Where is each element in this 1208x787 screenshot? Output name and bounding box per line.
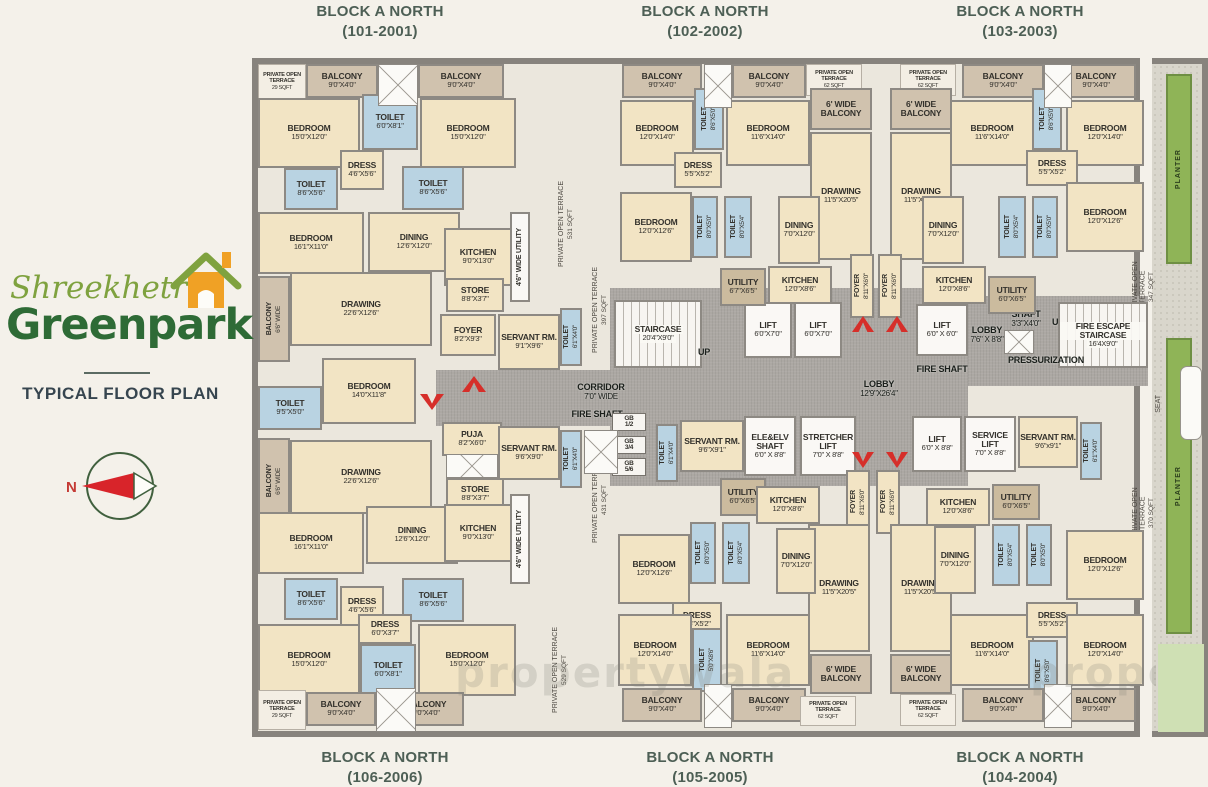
room-label: 6' WIDE BALCONY [892, 665, 950, 683]
room-label: TOILET [1004, 215, 1012, 239]
block-header-106-2006: BLOCK A NORTH(106-2006) [280, 748, 490, 787]
seat-label: SEAT [1152, 372, 1166, 436]
room-dimensions: 8'6"X5'6" [419, 188, 446, 197]
block-header-name: BLOCK A NORTH [915, 2, 1125, 22]
room-lift: LIFT6'0"X7'0" [794, 302, 842, 358]
room-dimensions: 9'0"X4'0" [755, 705, 782, 714]
room-label: LOBBY [972, 326, 1003, 336]
room-label: FOYER [854, 274, 862, 297]
grass [1158, 644, 1204, 732]
room-dimensions: 16'1"X11'0" [294, 243, 328, 252]
room-dimensions: 12'0"X12'6" [1088, 565, 1123, 574]
room-bedroom: BEDROOM15'0"X12'0" [258, 624, 360, 696]
room-dress: DRESS5'5"X5'2" [1026, 150, 1078, 186]
duct-shaft-icon [704, 64, 732, 108]
room-balcony: BALCONY9'0"X4'0" [732, 64, 806, 98]
room-dimensions: 8'6"X5'0" [710, 107, 717, 130]
room-dimensions: 12'0"X8'6" [942, 507, 973, 516]
room-dimensions: 431 SQFT [601, 485, 608, 515]
block-header-104-2004: BLOCK A NORTH(104-2004) [915, 748, 1125, 787]
room-dimensions: 8'2"X6'0" [458, 439, 485, 448]
room-dimensions: 7'0" X 8'8" [813, 451, 844, 460]
room-dimensions: 6'0"X8'1" [374, 670, 401, 679]
room-label: PRESSURIZATION [1008, 356, 1084, 366]
room-dimensions: 11'5"X20'5" [822, 588, 856, 597]
room-dimensions: 6'7"X6'5" [729, 287, 756, 296]
room-toilet: TOILET8'0"X5'0" [690, 522, 716, 584]
room-label: TOILET [1037, 215, 1045, 239]
room-dimensions: 6'0" X 8'8" [922, 444, 953, 453]
room-label: ELE&ELV SHAFT [746, 433, 794, 451]
room-label: BALCONY [266, 464, 274, 497]
utility-corridor-106: 4'6" WIDE UTILITY [510, 494, 530, 584]
room-lift: LIFT6'0" X 8'8" [912, 416, 962, 472]
room-dimensions: 6'1"X4'0" [572, 447, 579, 470]
room-dimensions: 9'0"X13'0" [462, 257, 493, 266]
room-foyer: FOYER8'11"X6'0" [850, 254, 874, 318]
room-private-open-terrace: PRIVATE OPEN TERRACE29 SQFT [258, 690, 306, 730]
room-dimensions: 8'0"X5'0" [704, 541, 711, 564]
room-dimensions: 7'0"X12'0" [783, 230, 814, 239]
room-bedroom: BEDROOM11'6"X14'0" [950, 100, 1034, 166]
room-label: PRIVATE OPEN TERRACE [558, 181, 566, 267]
room-dimensions: 12'0"X14'0" [640, 133, 675, 142]
room-dimensions: 9'0"X4'0" [989, 81, 1016, 90]
room-utility: UTILITY6'0"X6'5" [988, 276, 1036, 314]
room-dimensions: 9'6"x9'1" [1035, 442, 1061, 451]
room-dimensions: 12'0"X12'6" [1088, 217, 1123, 226]
room-6-wide-balcony: 6' WIDE BALCONY [890, 654, 952, 694]
room-store: STORE8'8"X3'7" [446, 278, 504, 312]
room-label: TOILET [701, 107, 709, 131]
room-label: TOILET [730, 215, 738, 239]
room-dimensions: 8'2"X9'3" [454, 335, 481, 344]
room-drawing: DRAWING11'5"X20'5" [808, 524, 870, 652]
room-servant-rm: SERVANT RM.9'1"X9'6" [498, 314, 560, 370]
room-bedroom: BEDROOM12'0"X12'6" [618, 534, 690, 604]
room-label: TOILET [728, 541, 736, 565]
block-header-103-2003: BLOCK A NORTH(103-2003) [915, 2, 1125, 41]
room-label: PRIVATE OPEN TERRACE [807, 71, 861, 83]
room-dimensions: 6'0" X 6'0" [927, 330, 958, 339]
room-dimensions: 6'0"X7'0" [804, 330, 831, 339]
room-dimensions: 8'11"X6'0" [863, 273, 870, 299]
room-dimensions: 397 SQFT [601, 295, 608, 325]
room-dining: DINING7'0"X12'0" [922, 196, 964, 264]
room-dimensions: 6'0"X8'1" [376, 122, 403, 131]
logo-divider [84, 372, 150, 374]
room-dimensions: 62 SQFT [818, 714, 838, 720]
room-kitchen: KITCHEN12'0"X8'6" [926, 488, 990, 526]
room-dimensions: 8'6"X5'0" [1048, 107, 1055, 130]
duct-shaft-icon [584, 430, 618, 474]
room-dimensions: 12'0"X12'6" [637, 569, 672, 578]
room-label: TOILET [998, 543, 1006, 567]
room-label: 6' WIDE BALCONY [812, 665, 870, 683]
room-balcony: BALCONY9'0"X4'0" [622, 64, 702, 98]
room-label: FIRE SHAFT [917, 365, 968, 375]
room-label: FIRE ESCAPE STAIRCASE [1060, 322, 1146, 340]
floor-plan-page: BLOCK A NORTH(101-2001)BLOCK A NORTH(102… [0, 0, 1208, 787]
room-toilet: TOILET8'0"X5'4" [992, 524, 1020, 586]
room-toilet: TOILET6'1"X4'0" [656, 424, 678, 482]
room-dress: DRESS4'6"X5'6" [340, 150, 384, 190]
room-dimensions: 9'0"X4'0" [1082, 81, 1109, 90]
room-dimensions: 4'6"X5'6" [348, 170, 375, 179]
room-dimensions: 8'0"X5'0" [706, 215, 713, 238]
room-label: 6' WIDE BALCONY [892, 100, 950, 118]
room-toilet: TOILET8'0"X5'0" [692, 196, 718, 258]
room-label: STRETCHER LIFT [802, 433, 854, 451]
room-toilet: TOILET8'6"X5'6" [284, 168, 338, 210]
room-dimensions: 11'5"X20'5" [824, 196, 858, 205]
room-label: BALCONY [266, 302, 274, 335]
block-header-range: (101-2001) [275, 22, 485, 42]
room-label: PRIVATE OPEN TERRACE [592, 267, 600, 353]
room-dimensions: 11'6"X14'0" [975, 650, 1009, 659]
room-dimensions: 8'6"X5'6" [419, 600, 446, 609]
room-utility: UTILITY6'7"X6'5" [720, 268, 766, 306]
gb-12: GB1/2 [612, 413, 646, 431]
room-dimensions: 9'0"X4'0" [447, 81, 474, 90]
room-servant-rm: SERVANT RM.9'6"x9'1" [1018, 416, 1078, 468]
room-dimensions: 9'0"X4'0" [327, 709, 354, 718]
room-label: 6' WIDE BALCONY [812, 100, 870, 118]
room-label: TOILET [695, 541, 703, 565]
room-label: LOBBY [864, 380, 895, 390]
room-dimensions: 9'5"X5'0" [276, 408, 303, 417]
room-dimensions: 9'0"X4'0" [989, 705, 1016, 714]
room-puja: PUJA8'2"X6'0" [442, 422, 502, 456]
room-label: SERVICE LIFT [966, 431, 1014, 449]
duct-shaft-icon [1004, 330, 1034, 354]
room-dimensions: 5'5"X5'2" [1038, 168, 1065, 177]
room-servant-rm: SERVANT RM.9'6"X9'0" [498, 426, 560, 480]
house-icon [168, 246, 244, 317]
seat [1180, 366, 1202, 440]
room-dimensions: 12'6"X12'0" [397, 242, 432, 251]
room-dimensions: 9'0"X4'0" [648, 81, 675, 90]
block-header-name: BLOCK A NORTH [605, 748, 815, 768]
block-header-range: (105-2005) [605, 768, 815, 787]
room-dimensions: 8'11"X6'0" [859, 489, 866, 515]
room-foyer: FOYER8'2"X9'3" [440, 314, 496, 356]
room-balcony: BALCONY9'0"X4'0" [418, 64, 504, 98]
room-dimensions: 8'0"X5'4" [739, 215, 746, 238]
room-dress: DRESS6'0"X3'7" [358, 614, 412, 644]
room-label: PRIVATE OPEN TERRACE [901, 71, 955, 83]
lobby-main: LOBBY12'9"X26'4" [836, 374, 922, 404]
room-bedroom: BEDROOM16'1"X11'0" [258, 212, 364, 274]
room-dimensions: 8'6"X5'6" [297, 189, 324, 198]
room-dimensions: 6'1"X4'0" [668, 441, 675, 464]
room-dimensions: 6'1"X4'0" [1092, 439, 1099, 462]
room-private-open-terrace: PRIVATE OPEN TERRACE29 SQFT [258, 64, 306, 100]
room-dimensions: 8'0"X5'4" [1007, 543, 1014, 566]
room-dimensions: 11'6"X14'0" [975, 133, 1009, 142]
room-dimensions: 7'0" X 8'8" [975, 449, 1006, 458]
room-dimensions: 9'6"X9'1" [698, 446, 725, 455]
room-utility: UTILITY6'0"X6'5" [992, 484, 1040, 520]
room-dimensions: 6'1"X4'0" [572, 325, 579, 348]
room-label: TOILET [697, 215, 705, 239]
room-label: UP [698, 348, 710, 358]
room-label: TOILET [563, 325, 571, 349]
room-dimensions: 15'0"X12'0" [292, 133, 327, 142]
room-toilet: TOILET6'1"X4'0" [1080, 422, 1102, 480]
room-dimensions: 6'0"X6'5" [1002, 502, 1029, 511]
room-service-lift: SERVICE LIFT7'0" X 8'8" [964, 416, 1016, 472]
room-toilet: TOILET9'5"X5'0" [258, 386, 322, 430]
room-label: FOYER [882, 274, 890, 297]
fire-shaft-right: FIRE SHAFT [914, 358, 970, 382]
room-dimensions: 3'3"X4'0" [1011, 319, 1040, 328]
room-label: PRIVATE OPEN TERRACE [901, 701, 955, 713]
room-balcony: BALCONY6'6" WIDE [258, 276, 290, 362]
room-dimensions: 6'0"X7'0" [754, 330, 781, 339]
block-header-102-2002: BLOCK A NORTH(102-2002) [600, 2, 810, 41]
room-label: PRIVATE OPEN TERRACE [259, 73, 305, 85]
room-dimensions: 7'0"X12'0" [780, 561, 811, 570]
room-kitchen: KITCHEN9'0"X13'0" [444, 504, 512, 562]
room-toilet: TOILET8'6"X5'6" [284, 578, 338, 620]
room-dimensions: 12'9"X26'4" [860, 389, 897, 398]
room-dining: DINING7'0"X12'0" [934, 526, 976, 594]
duct-shaft-icon [376, 688, 416, 732]
room-label: TOILET [1031, 543, 1039, 567]
room-dimensions: 8'6"X5'6" [297, 599, 324, 608]
room-bedroom: BEDROOM11'6"X14'0" [950, 614, 1034, 686]
room-dimensions: 7'0"X12'0" [927, 230, 958, 239]
room-6-wide-balcony: 6' WIDE BALCONY [890, 88, 952, 130]
watermark-text: propertywala [455, 648, 800, 697]
room-pressurization: PRESSURIZATION [984, 352, 1108, 370]
duct-shaft-icon [1044, 64, 1072, 108]
block-header-range: (106-2006) [280, 768, 490, 787]
room-dimensions: 370 SQFT [1148, 498, 1155, 528]
room-label: PLANTER [1175, 149, 1183, 189]
room-lift: LIFT6'0"X7'0" [744, 302, 792, 358]
compass-north-label: N [66, 479, 77, 496]
room-label: 4'6" WIDE UTILITY [516, 510, 524, 568]
room-dimensions: 531 SQFT [567, 209, 574, 239]
room-label: TOILET [1039, 107, 1047, 131]
room-balcony: BALCONY9'0"X4'0" [306, 64, 378, 98]
room-bedroom: BEDROOM12'0"X12'6" [620, 192, 692, 262]
room-dining: DINING7'0"X12'0" [778, 196, 820, 264]
room-kitchen: KITCHEN12'0"X8'6" [768, 266, 832, 304]
room-toilet: TOILET8'0"X5'4" [998, 196, 1026, 258]
room-dimensions: 12'0"X8'6" [784, 285, 815, 294]
duct-shaft-icon [378, 64, 418, 106]
room-drawing: DRAWING22'6"X12'6" [290, 440, 432, 514]
room-label: PLANTER [1175, 466, 1183, 506]
room-drawing: DRAWING22'6"X12'6" [290, 272, 432, 346]
utility-corridor-101: 4'6" WIDE UTILITY [510, 212, 530, 302]
room-dimensions: 9'0"X13'0" [462, 533, 493, 542]
block-header-range: (102-2002) [600, 22, 810, 42]
room-servant-rm: SERVANT RM.9'6"X9'1" [680, 420, 744, 472]
room-dimensions: 1/2 [625, 422, 633, 429]
room-dimensions: 8'11"X6'0" [891, 273, 898, 299]
planter-top: PLANTER [1166, 74, 1192, 264]
room-dimensions: 9'1"X9'6" [515, 342, 542, 351]
room-dimensions: 62 SQFT [918, 713, 938, 719]
room-private-open-terrace: PRIVATE OPEN TERRACE62 SQFT [800, 696, 856, 726]
room-dimensions: 12'6"X12'0" [395, 535, 430, 544]
room-dimensions: 6'0" X 8'8" [755, 451, 786, 460]
room-stretcher-lift: STRETCHER LIFT7'0" X 8'8" [800, 416, 856, 476]
room-dimensions: 22'6"X12'6" [344, 309, 379, 318]
room-private-open-terrace: PRIVATE OPEN TERRACE397 SQFT [592, 260, 608, 360]
room-dimensions: 15'0"X12'0" [451, 133, 486, 142]
room-dimensions: 8'11"X6'0" [889, 489, 896, 515]
room-label: SEAT [1155, 395, 1163, 413]
room-dimensions: 12'0"X12'6" [639, 227, 674, 236]
room-kitchen: KITCHEN12'0"X8'6" [756, 486, 820, 524]
room-dimensions: 7'0" WIDE [584, 392, 618, 401]
room-toilet: TOILET8'0"X5'4" [722, 522, 750, 584]
room-label: FOYER [880, 490, 888, 513]
room-label: PRIVATE OPEN TERRACE [259, 701, 305, 713]
room-dimensions: 16'4X9'0" [1087, 340, 1120, 349]
watermark-text-partial: propertywala [1030, 648, 1156, 697]
room-dimensions: 12'0"X14'0" [1088, 133, 1123, 142]
block-header-name: BLOCK A NORTH [275, 2, 485, 22]
room-dimensions: 347 SQFT [1148, 272, 1155, 302]
up-label-staircase: UP [692, 346, 716, 360]
room-label: CORRIDOR [577, 383, 624, 393]
block-header-101-2001: BLOCK A NORTH(101-2001) [275, 2, 485, 41]
room-bedroom: BEDROOM12'0"X12'6" [1066, 530, 1144, 600]
room-dimensions: 16'1"X11'0" [294, 543, 328, 552]
room-dimensions: 11'6"X14'0" [751, 133, 785, 142]
room-dimensions: 5'5"X5'2" [684, 170, 711, 179]
room-dimensions: 14'0"X11'8" [352, 391, 386, 400]
room-dimensions: 6'0"X6'5" [729, 497, 756, 506]
room-dimensions: 6'0"X3'7" [371, 629, 398, 638]
room-label: TOILET [1083, 439, 1091, 463]
room-label: 4'6" WIDE UTILITY [516, 228, 524, 286]
room-dimensions: 29 SQFT [272, 85, 292, 91]
room-6-wide-balcony: 6' WIDE BALCONY [810, 654, 872, 694]
room-dimensions: 5/6 [625, 467, 633, 474]
plan-subtitle: TYPICAL FLOOR PLAN [18, 384, 223, 404]
room-balcony: BALCONY9'0"X4'0" [306, 692, 376, 726]
room-dimensions: 7'0"X12'0" [939, 560, 970, 569]
room-private-open-terrace: PRIVATE OPEN TERRACE62 SQFT [900, 694, 956, 726]
room-dimensions: 8'0"X5'4" [1013, 215, 1020, 238]
room-dimensions: 6'6" WIDE [275, 468, 282, 495]
room-dimensions: 9'0"X4'0" [412, 709, 439, 718]
room-label: TOILET [563, 447, 571, 471]
room-dimensions: 3/4 [625, 445, 633, 452]
room-dimensions: 8'0"X5'0" [1040, 543, 1047, 566]
room-dimensions: 9'6"X9'0" [515, 453, 542, 462]
room-dress: DRESS5'5"X5'2" [674, 152, 722, 188]
room-dimensions: 7'6" X 8'8" [970, 335, 1003, 344]
room-dimensions: 9'0"X4'0" [1082, 705, 1109, 714]
room-kitchen: KITCHEN12'0"X8'6" [922, 266, 986, 304]
room-label: TOILET [659, 441, 667, 465]
block-header-name: BLOCK A NORTH [915, 748, 1125, 768]
room-dimensions: 12'0"X8'6" [938, 285, 969, 294]
room-dimensions: 9'0"X4'0" [755, 81, 782, 90]
room-label: FOYER [850, 490, 858, 513]
room-bedroom: BEDROOM11'6"X14'0" [726, 100, 810, 166]
room-toilet: TOILET8'0"X5'4" [724, 196, 752, 258]
room-bedroom: BEDROOM14'0"X11'8" [322, 358, 416, 424]
block-header-name: BLOCK A NORTH [600, 2, 810, 22]
room-label: PRIVATE OPEN TERRACE [801, 702, 855, 714]
compass-icon: N [62, 446, 174, 531]
room-dining: DINING7'0"X12'0" [776, 528, 816, 594]
room-dimensions: 20'4"X9'0" [640, 334, 675, 343]
room-dimensions: 9'0"X4'0" [328, 81, 355, 90]
room-toilet: TOILET8'0"X5'0" [1032, 196, 1058, 258]
room-dimensions: 6'6" WIDE [275, 306, 282, 333]
room-dimensions: 8'0"X5'4" [737, 541, 744, 564]
room-ele-elv-shaft: ELE&ELV SHAFT6'0" X 8'8" [744, 416, 796, 476]
block-header-range: (104-2004) [915, 768, 1125, 787]
room-dimensions: 5'5"X5'2" [1038, 620, 1065, 629]
room-bedroom: BEDROOM12'0"X12'6" [1066, 182, 1144, 252]
room-toilet: TOILET8'0"X5'0" [1026, 524, 1052, 586]
duct-shaft-icon [446, 454, 498, 478]
block-header-105-2005: BLOCK A NORTH(105-2005) [605, 748, 815, 787]
room-bedroom: BEDROOM15'0"X12'0" [420, 98, 516, 168]
room-dimensions: 9'0"X4'0" [648, 705, 675, 714]
room-dimensions: 8'0"X5'0" [1046, 215, 1053, 238]
room-dimensions: 15'0"X12'0" [292, 660, 327, 669]
room-dimensions: 8'8"X3'7" [461, 295, 488, 304]
room-bedroom: BEDROOM16'1"X11'0" [258, 512, 364, 574]
room-dimensions: 12'0"X8'6" [772, 505, 803, 514]
room-staircase: STAIRCASE20'4"X9'0" [614, 300, 702, 368]
room-dimensions: 8'8"X3'7" [461, 494, 488, 503]
room-dimensions: 29 SQFT [272, 713, 292, 719]
room-dimensions: 6'0"X6'5" [998, 295, 1025, 304]
room-toilet: TOILET6'1"X4'0" [560, 430, 582, 488]
block-header-range: (103-2003) [915, 22, 1125, 42]
room-private-open-terrace: PRIVATE OPEN TERRACE531 SQFT [558, 178, 574, 270]
block-header-name: BLOCK A NORTH [280, 748, 490, 768]
room-foyer: FOYER8'11"X6'0" [878, 254, 902, 318]
room-dimensions: 22'6"X12'6" [344, 477, 379, 486]
room-toilet: TOILET8'6"X5'6" [402, 166, 464, 210]
room-toilet: TOILET6'1"X4'0" [560, 308, 582, 366]
room-6-wide-balcony: 6' WIDE BALCONY [810, 88, 872, 130]
